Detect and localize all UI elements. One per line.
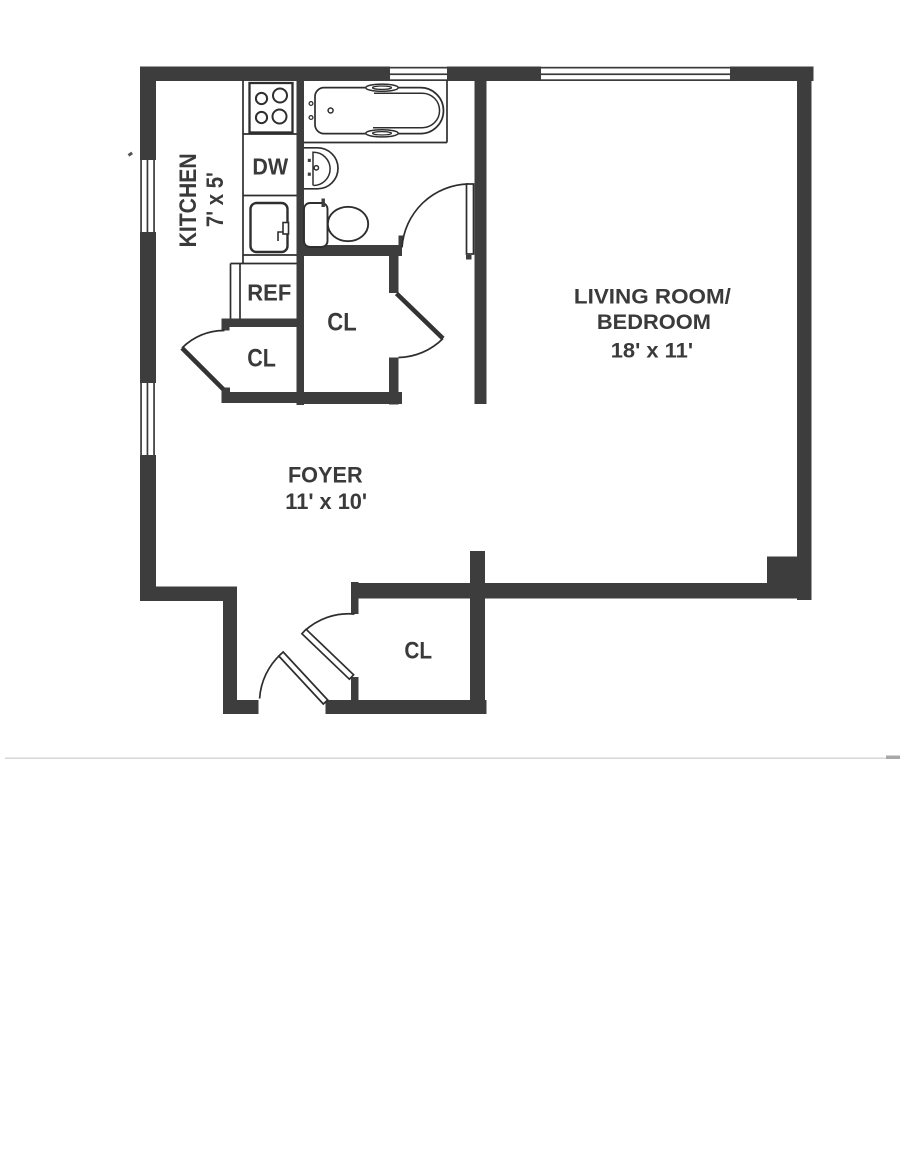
svg-text:CL: CL (404, 638, 432, 665)
svg-text:7' x 5': 7' x 5' (202, 172, 229, 227)
svg-text:11' x 10': 11' x 10' (285, 489, 367, 514)
svg-text:DW: DW (252, 154, 288, 180)
svg-text:REF: REF (247, 279, 291, 305)
svg-text:BEDROOM: BEDROOM (597, 310, 711, 334)
svg-text:CL: CL (247, 345, 276, 373)
svg-text:CL: CL (327, 309, 356, 337)
svg-text:LIVING ROOM/: LIVING ROOM/ (574, 285, 731, 309)
svg-text:KITCHEN: KITCHEN (175, 153, 202, 247)
svg-text:FOYER: FOYER (288, 463, 363, 488)
svg-text:18' x 11': 18' x 11' (611, 338, 693, 362)
